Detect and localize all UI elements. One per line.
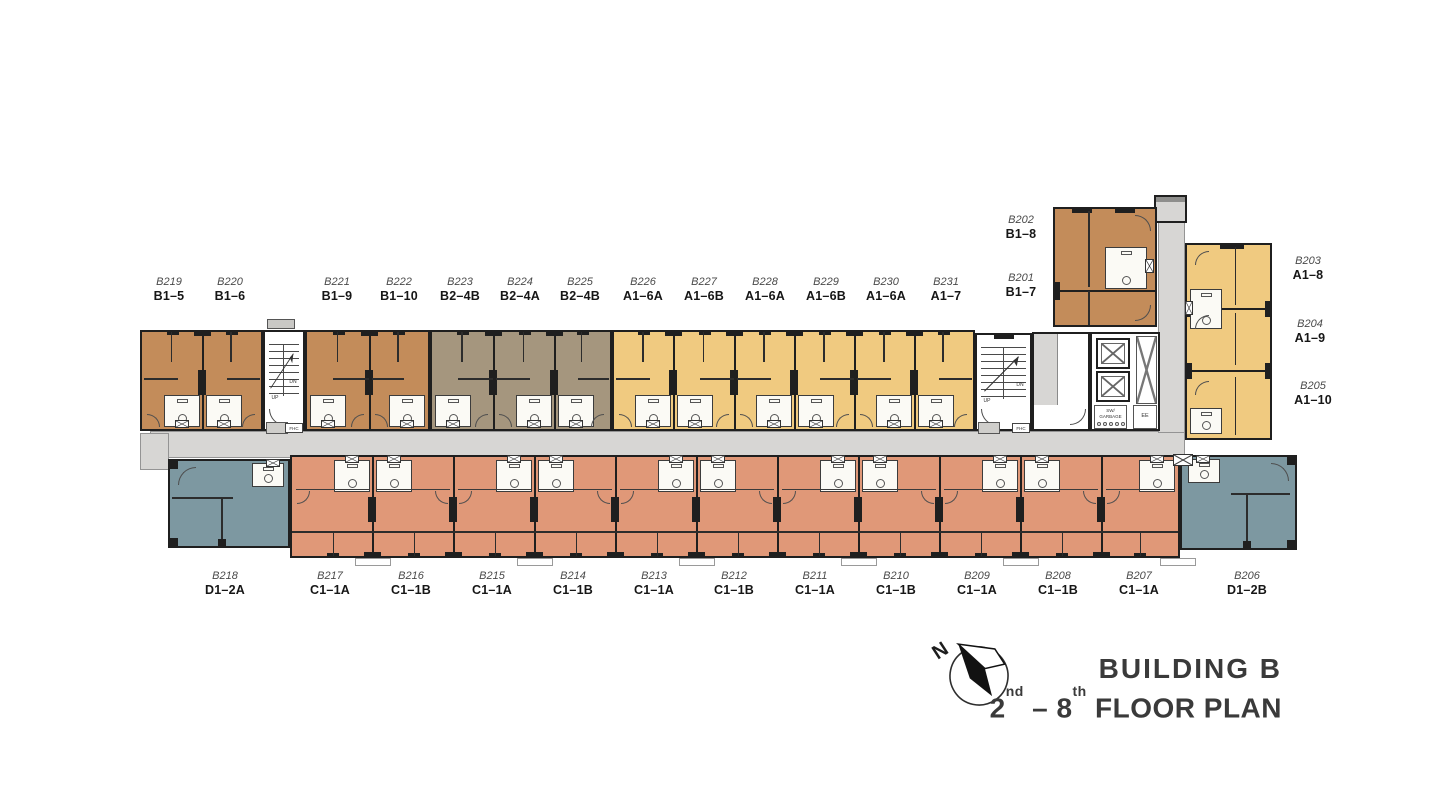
toilet-icon xyxy=(1153,479,1162,488)
door-arc xyxy=(1195,381,1209,395)
unit-label-B228: B228A1–6A xyxy=(745,276,785,304)
unit-label-B224: B224B2–4A xyxy=(500,276,540,304)
interior-wall xyxy=(230,332,232,362)
compass-north-label: N xyxy=(928,638,952,664)
toilet-icon xyxy=(390,479,399,488)
sink-icon xyxy=(529,399,540,403)
sink-icon xyxy=(769,399,780,403)
door-arc xyxy=(1135,215,1151,231)
door-arc xyxy=(1135,305,1151,321)
interior-wall xyxy=(333,532,334,556)
unit-label-B222: B222B1–10 xyxy=(380,276,418,304)
unit-row-salmon xyxy=(290,455,1180,558)
unit-number: B214 xyxy=(553,570,593,583)
x-mark xyxy=(1036,456,1048,462)
sink-icon xyxy=(347,464,358,468)
window-jamb xyxy=(938,330,950,335)
unit-label-B210: B210C1–1B xyxy=(876,570,916,598)
bathroom xyxy=(820,460,856,492)
unit-number: B221 xyxy=(322,276,353,289)
sink-icon xyxy=(551,464,562,468)
door-arc xyxy=(621,491,634,504)
unit-type: A1–6B xyxy=(806,289,846,304)
unit-type: C1–1A xyxy=(1119,583,1159,598)
fhc-label: FHC xyxy=(1013,426,1029,432)
shaft-vent xyxy=(711,455,725,463)
unit-label-B223: B223B2–4B xyxy=(440,276,480,304)
unit-label-B216: B216C1–1B xyxy=(391,570,431,598)
interior-wall xyxy=(737,378,771,380)
unit-number: B206 xyxy=(1227,570,1267,583)
window-jamb xyxy=(879,330,891,335)
building-name: BUILDING B xyxy=(990,653,1282,685)
interior-wall xyxy=(414,532,415,556)
bin-icon xyxy=(1109,422,1113,426)
shaft-vent xyxy=(507,455,521,463)
x-mark xyxy=(401,421,413,427)
unit-type: D1–2B xyxy=(1227,583,1267,598)
unit-label-B219: B219B1–5 xyxy=(154,276,185,304)
door-arc xyxy=(921,491,934,504)
bathroom xyxy=(1139,460,1175,492)
column-tick xyxy=(910,370,918,395)
plan-title: BUILDING B 2nd – 8th FLOOR PLAN xyxy=(990,653,1282,725)
interior-wall xyxy=(296,489,369,490)
garbage-room-label: SW/ xyxy=(1095,408,1126,414)
toilet-icon xyxy=(1122,276,1131,285)
bin-icon xyxy=(1121,422,1125,426)
shaft-vent xyxy=(527,420,541,428)
shaft-vent xyxy=(688,420,702,428)
balcony-ledge xyxy=(517,558,553,566)
column-tick xyxy=(850,370,858,395)
window-jamb xyxy=(931,552,948,558)
unit-number: B230 xyxy=(866,276,906,289)
unit-type: B1–10 xyxy=(380,289,418,304)
sink-icon xyxy=(1201,293,1212,297)
sink-icon xyxy=(402,399,413,403)
shaft-vent xyxy=(831,455,845,463)
unit-label-B218: B218D1–2A xyxy=(205,570,245,598)
unit-type: C1–1A xyxy=(795,583,835,598)
shaft-vent xyxy=(569,420,583,428)
electrical-room-label: EE xyxy=(1134,414,1156,420)
sink-icon xyxy=(1037,464,1048,468)
interior-wall xyxy=(900,532,901,556)
unit-type: B1–8 xyxy=(1006,227,1037,242)
interior-wall xyxy=(461,332,463,362)
unit-label-B209: B209C1–1A xyxy=(957,570,997,598)
interior-wall xyxy=(820,378,854,380)
column-tick xyxy=(365,370,373,395)
shaft-vent xyxy=(1145,259,1154,273)
interior-wall xyxy=(944,489,1017,490)
window-jamb xyxy=(361,330,378,336)
bathroom xyxy=(376,460,412,492)
x-mark xyxy=(874,456,886,462)
column-tick xyxy=(854,497,862,522)
window-jamb xyxy=(1220,243,1244,249)
window-jamb xyxy=(194,330,211,336)
x-mark xyxy=(388,456,400,462)
window-jamb xyxy=(759,330,771,335)
window-jamb xyxy=(906,330,923,336)
interior-wall xyxy=(857,378,891,380)
stair-direction-arrow xyxy=(267,346,297,394)
unit-row-taupe xyxy=(430,330,612,431)
interior-wall xyxy=(1062,532,1063,556)
fhc-box: FHC xyxy=(1012,423,1030,433)
interior-wall xyxy=(578,378,609,380)
interior-wall xyxy=(703,332,705,362)
toilet-icon xyxy=(348,479,357,488)
x-mark xyxy=(832,456,844,462)
window-jamb xyxy=(546,330,563,336)
shaft-vent xyxy=(887,420,901,428)
shaft-vent xyxy=(387,455,401,463)
sink-icon xyxy=(995,464,1006,468)
x-mark xyxy=(1146,260,1153,272)
elevator xyxy=(1096,338,1130,369)
bathroom xyxy=(1024,460,1060,492)
interior-wall xyxy=(620,489,693,490)
bathroom xyxy=(658,460,694,492)
unit-type: C1–1A xyxy=(310,583,350,598)
interior-wall xyxy=(171,332,173,362)
fhc-box: FHC xyxy=(285,423,303,433)
unit-label-B201: B201B1–7 xyxy=(1006,272,1037,300)
unit-label-B226: B226A1–6A xyxy=(623,276,663,304)
unit-type: C1–1B xyxy=(714,583,754,598)
window-jamb xyxy=(393,330,405,335)
door-arc xyxy=(740,414,753,427)
x-mark xyxy=(1174,455,1192,465)
unit-label-B225: B225B2–4B xyxy=(560,276,600,304)
shaft-vent xyxy=(1173,454,1193,466)
x-mark xyxy=(712,456,724,462)
door-arc xyxy=(945,491,958,504)
unit-type: A1–8 xyxy=(1293,268,1324,283)
interior-wall xyxy=(1088,211,1090,287)
column-tick xyxy=(1097,497,1105,522)
shaft-vent xyxy=(446,420,460,428)
column-tick xyxy=(1265,301,1270,317)
interior-wall xyxy=(523,332,525,362)
unit-label-B215: B215C1–1A xyxy=(472,570,512,598)
fhc-label: FHC xyxy=(286,426,302,432)
window-jamb xyxy=(819,330,831,335)
shaft-vent xyxy=(217,420,231,428)
column-tick xyxy=(169,460,178,469)
interior-wall xyxy=(939,378,971,380)
unit-label-B205: B205A1–10 xyxy=(1294,380,1332,408)
unit-label-B204: B204A1–9 xyxy=(1295,318,1326,346)
door-arc xyxy=(860,414,873,427)
shaft-vent xyxy=(929,420,943,428)
x-mark xyxy=(570,421,582,427)
shaft-vent xyxy=(646,420,660,428)
door-arc xyxy=(499,414,512,427)
unit-number: B231 xyxy=(931,276,962,289)
shaft-vent xyxy=(1185,301,1193,315)
unit-number: B225 xyxy=(560,276,600,289)
sink-icon xyxy=(177,399,188,403)
sink-icon xyxy=(811,399,822,403)
unit-number: B205 xyxy=(1294,380,1332,393)
interior-wall xyxy=(942,332,944,362)
service-core: SW/GARBAGEEE xyxy=(1090,332,1160,431)
toilet-icon xyxy=(552,479,561,488)
interior-wall xyxy=(1235,313,1237,365)
toilet-icon xyxy=(1202,421,1211,430)
interior-wall xyxy=(372,378,404,380)
window-jamb xyxy=(994,333,1014,339)
unit-label-B211: B211C1–1A xyxy=(795,570,835,598)
unit-type: A1–7 xyxy=(931,289,962,304)
shaft-vent xyxy=(669,455,683,463)
interior-wall xyxy=(333,378,368,380)
floor-sup1: nd xyxy=(1006,683,1024,699)
shaft-vent xyxy=(266,459,280,467)
x-mark xyxy=(528,421,540,427)
door-arc xyxy=(459,491,472,504)
unit-number: B228 xyxy=(745,276,785,289)
corridor xyxy=(140,433,169,470)
interior-wall xyxy=(700,378,734,380)
x-mark xyxy=(810,421,822,427)
unit-number: B203 xyxy=(1293,255,1324,268)
interior-wall xyxy=(581,332,583,362)
door-arc xyxy=(1195,251,1209,265)
window-jamb xyxy=(786,330,803,336)
sink-icon xyxy=(875,464,886,468)
door-arc xyxy=(178,467,196,485)
door-arc xyxy=(1271,463,1289,481)
interior-wall xyxy=(539,489,612,490)
bathroom xyxy=(1190,408,1222,434)
unit-type: B1–9 xyxy=(322,289,353,304)
toilet-icon xyxy=(1038,479,1047,488)
door-arc xyxy=(836,414,849,427)
unit-type: B2–4B xyxy=(560,289,600,304)
stairwell: DNUPFHC xyxy=(975,333,1032,431)
unit-number: B204 xyxy=(1295,318,1326,331)
interior-wall xyxy=(863,489,936,490)
unit-number: B222 xyxy=(380,276,418,289)
shaft-vent xyxy=(175,420,189,428)
sink-icon xyxy=(889,399,900,403)
shaft-vent xyxy=(1196,455,1210,463)
shaft-vent xyxy=(1150,455,1164,463)
shaft-vent xyxy=(549,455,563,463)
interior-wall xyxy=(782,489,855,490)
column-tick xyxy=(218,539,226,547)
unit-number: B213 xyxy=(634,570,674,583)
stairwell: DNUPFHC xyxy=(263,330,305,431)
column-tick xyxy=(1054,282,1060,300)
unit-label-B217: B217C1–1A xyxy=(310,570,350,598)
window-jamb xyxy=(485,330,502,336)
interior-wall xyxy=(458,378,493,380)
unit-type: C1–1B xyxy=(876,583,916,598)
door-arc xyxy=(759,491,772,504)
unit-row-brown xyxy=(140,330,263,431)
unit-divider-wall xyxy=(1187,370,1270,372)
unit-label-B227: B227A1–6B xyxy=(684,276,724,304)
unit-type: C1–1B xyxy=(391,583,431,598)
sink-icon xyxy=(448,399,459,403)
interior-wall xyxy=(1140,532,1141,556)
unit-number: B210 xyxy=(876,570,916,583)
lobby-gray-area xyxy=(1034,334,1058,405)
vestibule-ledge xyxy=(1156,197,1185,202)
door-arc xyxy=(435,491,448,504)
unit-type: A1–6A xyxy=(866,289,906,304)
interior-wall xyxy=(458,489,531,490)
interior-wall xyxy=(981,532,982,556)
unit-number: B211 xyxy=(795,570,835,583)
interior-wall xyxy=(657,532,658,556)
bathroom xyxy=(1105,247,1147,289)
floor-num1: 2 xyxy=(990,692,1006,723)
x-mark xyxy=(670,456,682,462)
toilet-icon xyxy=(996,479,1005,488)
balcony-ledge xyxy=(355,558,391,566)
door-arc xyxy=(297,491,310,504)
unit-label-B229: B229A1–6B xyxy=(806,276,846,304)
interior-wall xyxy=(337,332,339,362)
door-arc xyxy=(954,414,967,427)
shaft-vent xyxy=(993,455,1007,463)
electrical-room: EE xyxy=(1133,405,1157,429)
shaft-vent xyxy=(345,455,359,463)
shaft-vent xyxy=(809,420,823,428)
column-tick xyxy=(611,497,619,522)
door-arc xyxy=(597,491,610,504)
interior-wall xyxy=(819,532,820,556)
door-arc xyxy=(716,414,729,427)
corridor xyxy=(150,431,1185,458)
interior-wall xyxy=(738,532,739,556)
x-mark xyxy=(1102,377,1124,396)
unit-type: C1–1A xyxy=(472,583,512,598)
shaft-vent xyxy=(321,420,335,428)
stair-lobby-box xyxy=(978,422,1000,434)
floor-range: 2nd – 8th FLOOR PLAN xyxy=(990,685,1282,725)
balcony-ledge xyxy=(679,558,715,566)
door-arc xyxy=(475,414,488,427)
x-mark xyxy=(647,421,659,427)
door-arc xyxy=(375,414,388,427)
roof-ledge xyxy=(267,319,295,329)
x-mark xyxy=(267,460,279,466)
sink-icon xyxy=(263,467,274,471)
unit-number: B201 xyxy=(1006,272,1037,285)
window-jamb xyxy=(726,330,743,336)
interior-wall xyxy=(1106,489,1174,490)
shaft-vent xyxy=(1035,455,1049,463)
unit-number: B223 xyxy=(440,276,480,289)
toilet-icon xyxy=(834,479,843,488)
unit-type: A1–6B xyxy=(684,289,724,304)
column-tick xyxy=(730,370,738,395)
bathroom xyxy=(334,460,370,492)
unit-number: B202 xyxy=(1006,214,1037,227)
window-jamb xyxy=(333,330,345,335)
door-arc xyxy=(1107,491,1120,504)
elevator xyxy=(1096,371,1130,402)
column-tick xyxy=(1243,541,1251,549)
window-jamb xyxy=(699,330,711,335)
unit-number: B224 xyxy=(500,276,540,289)
column-tick xyxy=(1265,363,1270,379)
column-tick xyxy=(1016,497,1024,522)
elevator-cab xyxy=(1101,376,1125,397)
column-tick xyxy=(169,538,178,547)
sink-icon xyxy=(219,399,230,403)
interior-wall xyxy=(377,489,450,490)
shaft-vent xyxy=(873,455,887,463)
garbage-room-label2: GARBAGE xyxy=(1095,414,1126,420)
corridor xyxy=(1158,197,1185,433)
interior-wall xyxy=(763,332,765,362)
interior-wall xyxy=(823,332,825,362)
elevator-lobby xyxy=(1032,332,1090,431)
toilet-icon xyxy=(264,474,273,483)
unit-type: C1–1A xyxy=(634,583,674,598)
unit-label-B214: B214C1–1B xyxy=(553,570,593,598)
service-shaft xyxy=(1136,336,1157,404)
corridor-vestibule xyxy=(1154,195,1187,223)
balcony-ledge xyxy=(1003,558,1039,566)
window-jamb xyxy=(445,552,462,558)
unit-divider-wall xyxy=(1055,290,1155,292)
unit-number: B207 xyxy=(1119,570,1159,583)
floor-num2: 8 xyxy=(1056,692,1072,723)
column-tick xyxy=(935,497,943,522)
column-tick xyxy=(773,497,781,522)
unit-label-B230: B230A1–6A xyxy=(866,276,906,304)
sink-icon xyxy=(713,464,724,468)
unit-label-B208: B208C1–1B xyxy=(1038,570,1078,598)
door-arc xyxy=(1070,409,1086,425)
floor-dash: – xyxy=(1024,692,1057,723)
stair-label-dn: DN xyxy=(1012,383,1028,389)
floor-rest: FLOOR PLAN xyxy=(1087,692,1282,723)
unit-number: B209 xyxy=(957,570,997,583)
stair-label-dn: DN xyxy=(285,380,301,386)
door-arc xyxy=(147,414,160,427)
unit-label-B221: B221B1–9 xyxy=(322,276,353,304)
x-mark xyxy=(176,421,188,427)
door-arc xyxy=(619,414,632,427)
toilet-icon xyxy=(510,479,519,488)
unit-end-left xyxy=(168,459,290,548)
interior-wall xyxy=(701,489,774,490)
window-jamb xyxy=(1093,552,1110,558)
unit-number: B208 xyxy=(1038,570,1078,583)
unit-type: A1–6A xyxy=(623,289,663,304)
x-mark xyxy=(888,421,900,427)
stair-direction-arrow xyxy=(979,349,1024,397)
interior-wall xyxy=(1235,377,1237,435)
unit-end-right xyxy=(1180,455,1297,550)
elevator-cab xyxy=(1101,343,1125,364)
garbage-room: SW/GARBAGE xyxy=(1094,405,1127,429)
unit-number: B217 xyxy=(310,570,350,583)
bathroom xyxy=(700,460,736,492)
unit-number: B212 xyxy=(714,570,754,583)
